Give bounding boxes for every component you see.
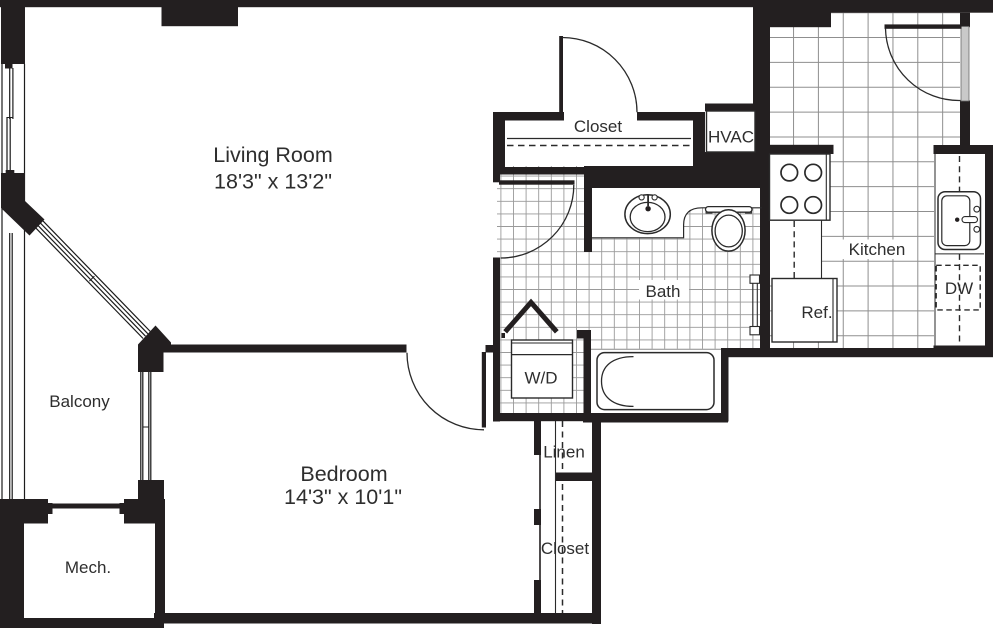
svg-text:Balcony: Balcony: [49, 392, 110, 411]
svg-text:Living Room: Living Room: [213, 143, 333, 167]
svg-text:Closet: Closet: [574, 117, 622, 136]
svg-text:18'3" x 13'2": 18'3" x 13'2": [214, 170, 332, 194]
svg-text:HVAC: HVAC: [708, 128, 754, 147]
svg-text:DW: DW: [945, 279, 973, 298]
svg-text:Ref.: Ref.: [801, 303, 832, 322]
svg-text:W/D: W/D: [524, 369, 557, 388]
svg-text:Mech.: Mech.: [65, 558, 111, 577]
svg-text:14'3" x 10'1": 14'3" x 10'1": [284, 485, 402, 509]
svg-text:Linen: Linen: [543, 443, 585, 462]
svg-text:Bath: Bath: [646, 282, 681, 301]
svg-text:Kitchen: Kitchen: [849, 240, 906, 259]
svg-text:Bedroom: Bedroom: [300, 462, 387, 486]
svg-text:Closet: Closet: [541, 539, 589, 558]
